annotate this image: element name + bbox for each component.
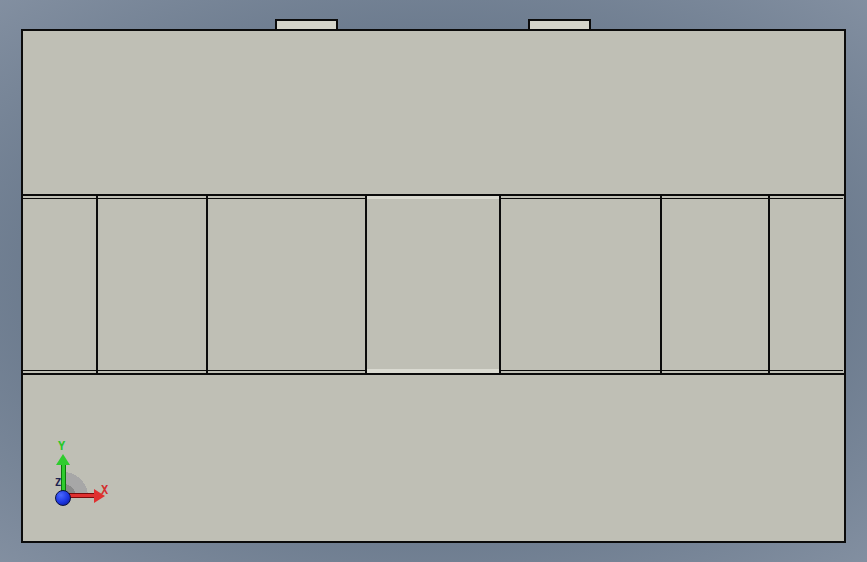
band-divider-5 [660,196,662,375]
band-panel-center[interactable] [367,199,499,370]
part-tab-left[interactable] [275,19,338,29]
band-panel-7[interactable] [770,199,843,370]
band-panel-5[interactable] [501,199,660,370]
part-tab-right[interactable] [528,19,591,29]
band-bottom-inner-edge-right [501,370,843,371]
band-top-inner-edge-left [23,198,365,199]
cad-viewport[interactable]: Z Y X [0,0,867,562]
band-divider-2 [206,196,208,375]
band-divider-3 [365,196,367,375]
face-lower[interactable] [23,375,844,541]
band-bottom-outer-edge [23,373,844,375]
band-bottom-inner-edge-left [23,370,365,371]
y-axis-arrowhead-icon [56,454,70,465]
band-divider-4 [499,196,501,375]
band-panel-1[interactable] [23,199,96,370]
face-upper[interactable] [23,31,844,194]
band-top-outer-edge [23,194,844,196]
band-top-inner-edge-right [501,198,843,199]
x-axis-label: X [101,484,108,496]
band-panel-6[interactable] [662,199,768,370]
center-panel-top-highlight [367,196,499,199]
band-divider-6 [768,196,770,375]
band-panel-3[interactable] [208,199,365,370]
band-panel-2[interactable] [98,199,206,370]
z-axis-label: Z [55,478,61,488]
y-axis-label: Y [58,440,65,452]
origin-sphere-icon [55,490,71,506]
band-divider-1 [96,196,98,375]
